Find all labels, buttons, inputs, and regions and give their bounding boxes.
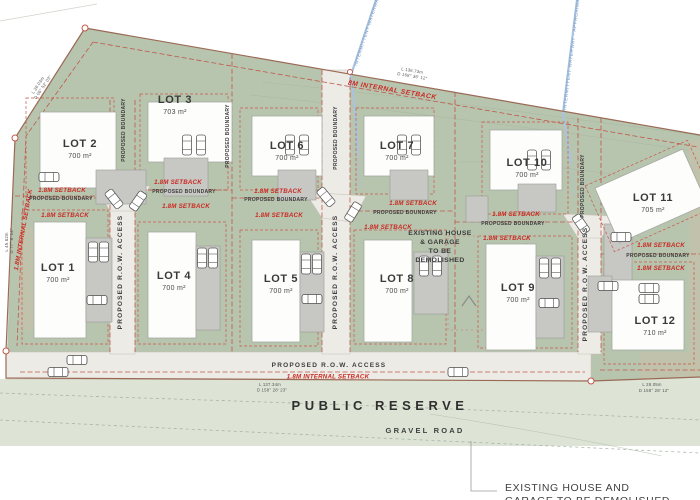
car-icon (89, 242, 98, 262)
proposed-boundary-label-vertical: PROPOSED BOUNDARY (333, 106, 339, 170)
internal-setback-south-label: 1.8M INTERNAL SETBACK (287, 374, 370, 381)
setback-label: 1.8M SETBACK (255, 212, 303, 219)
lot-12-area: 710 m² (643, 330, 667, 337)
site-plan-drawing: INTERMITTENT WATERWAY - APPROXIMATE POSI… (0, 0, 700, 500)
proposed-boundary-label: PROPOSED BOUNDARY (626, 253, 690, 259)
row-access-label-vertical: PROPOSED R.O.W. ACCESS (332, 215, 339, 330)
proposed-boundary-label: PROPOSED BOUNDARY (244, 197, 308, 203)
lot-11-label: LOT 11 (633, 192, 673, 204)
lot-6-label: LOT 6 (270, 140, 304, 152)
lot-10-area: 700 m² (515, 172, 539, 179)
row-access-label-vertical: PROPOSED R.O.W. ACCESS (117, 215, 124, 330)
car-icon (197, 135, 206, 155)
svg-text:D 158° 28' 12": D 158° 28' 12" (639, 388, 670, 393)
lot-9-area: 700 m² (506, 297, 530, 304)
setback-label: 1.8M SETBACK (254, 188, 302, 195)
car-icon (198, 248, 207, 268)
lot-9-label: LOT 9 (501, 282, 535, 294)
row-access-label-south: PROPOSED R.O.W. ACCESS (272, 362, 387, 369)
car-icon (598, 282, 618, 291)
car-icon (39, 173, 59, 182)
setback-label: 1.8M SETBACK (41, 212, 89, 219)
lot-1-label: LOT 1 (41, 262, 75, 274)
svg-text:EXISTING HOUSE: EXISTING HOUSE (408, 230, 471, 237)
car-icon (639, 284, 659, 293)
car-icon (639, 295, 659, 304)
lot-7-area: 700 m² (385, 155, 409, 162)
lot-3-area: 703 m² (163, 109, 187, 116)
public-reserve-title: PUBLIC RESERVE (292, 398, 469, 413)
setback-label: 1.8M SETBACK (364, 224, 412, 231)
car-icon (100, 242, 109, 262)
lot-12-label: LOT 12 (635, 315, 676, 327)
svg-text:GARAGE TO BE DEMOLISHED: GARAGE TO BE DEMOLISHED (505, 495, 670, 500)
survey-marker (82, 25, 88, 31)
car-icon (48, 368, 68, 377)
svg-text:D 77° 8' 14": D 77° 8' 14" (9, 228, 14, 253)
svg-text:L 28.05m: L 28.05m (642, 382, 662, 387)
setback-label: 1.8M SETBACK (38, 187, 86, 194)
lot-5-label: LOT 5 (264, 273, 298, 285)
survey-marker (3, 348, 9, 354)
svg-text:TO BE: TO BE (429, 248, 452, 255)
setback-label: 1.8M SETBACK (162, 203, 210, 210)
svg-text:D 158° 28' 23": D 158° 28' 23" (257, 388, 288, 393)
setback-label: 1.8M SETBACK (492, 211, 540, 218)
proposed-boundary-label-vertical: PROPOSED BOUNDARY (580, 154, 586, 218)
car-icon (611, 233, 631, 242)
car-icon (540, 258, 549, 278)
proposed-boundary-label: PROPOSED BOUNDARY (481, 221, 545, 227)
car-icon (539, 299, 559, 308)
lot-5-area: 700 m² (269, 288, 293, 295)
car-icon (183, 135, 192, 155)
lot-6-area: 700 m² (275, 155, 299, 162)
lot-1-area: 700 m² (46, 277, 70, 284)
survey-marker (12, 135, 18, 141)
setback-label: 1.8M SETBACK (154, 179, 202, 186)
proposed-boundary-label: PROPOSED BOUNDARY (29, 196, 93, 202)
svg-text:& GARAGE: & GARAGE (420, 239, 460, 246)
lot-2-area: 700 m² (68, 153, 92, 160)
row-access-label-vertical: PROPOSED R.O.W. ACCESS (582, 227, 589, 342)
svg-text:EXISTING HOUSE AND: EXISTING HOUSE AND (505, 482, 630, 494)
car-icon (302, 295, 322, 304)
lot-11-area: 705 m² (641, 207, 665, 214)
lot-7-label: LOT 7 (380, 140, 414, 152)
proposed-boundary-label-vertical: PROPOSED BOUNDARY (121, 98, 127, 162)
proposed-boundary-label: PROPOSED BOUNDARY (152, 189, 216, 195)
car-icon (87, 296, 107, 305)
lot-3-label: LOT 3 (158, 94, 192, 106)
car-icon (67, 356, 87, 365)
svg-text:DEMOLISHED: DEMOLISHED (415, 257, 464, 264)
lot-8-label: LOT 8 (380, 273, 414, 285)
proposed-boundary-label: PROPOSED BOUNDARY (373, 210, 437, 216)
svg-text:L 137.34m: L 137.34m (259, 382, 281, 387)
setback-label: 1.8M SETBACK (483, 235, 531, 242)
car-icon (552, 258, 561, 278)
site-plan-page: INTERMITTENT WATERWAY - APPROXIMATE POSI… (0, 0, 700, 500)
car-icon (448, 368, 468, 377)
lot-10-label: LOT 10 (507, 157, 548, 169)
setback-label: 1.8M SETBACK (389, 200, 437, 207)
proposed-boundary-label-vertical: PROPOSED BOUNDARY (225, 104, 231, 168)
car-icon (302, 254, 311, 274)
gravel-road-label: GRAVEL ROAD (386, 426, 465, 435)
lot-4-label: LOT 4 (157, 270, 191, 282)
car-icon (209, 248, 218, 268)
lot-4-area: 700 m² (162, 285, 186, 292)
car-icon (313, 254, 322, 274)
setback-label: 1.8M SETBACK (637, 265, 685, 272)
lot-8-area: 700 m² (385, 288, 409, 295)
survey-marker (348, 70, 353, 75)
setback-label: 1.8M SETBACK (637, 242, 685, 249)
survey-marker (588, 378, 594, 384)
lot-2-label: LOT 2 (63, 138, 97, 150)
